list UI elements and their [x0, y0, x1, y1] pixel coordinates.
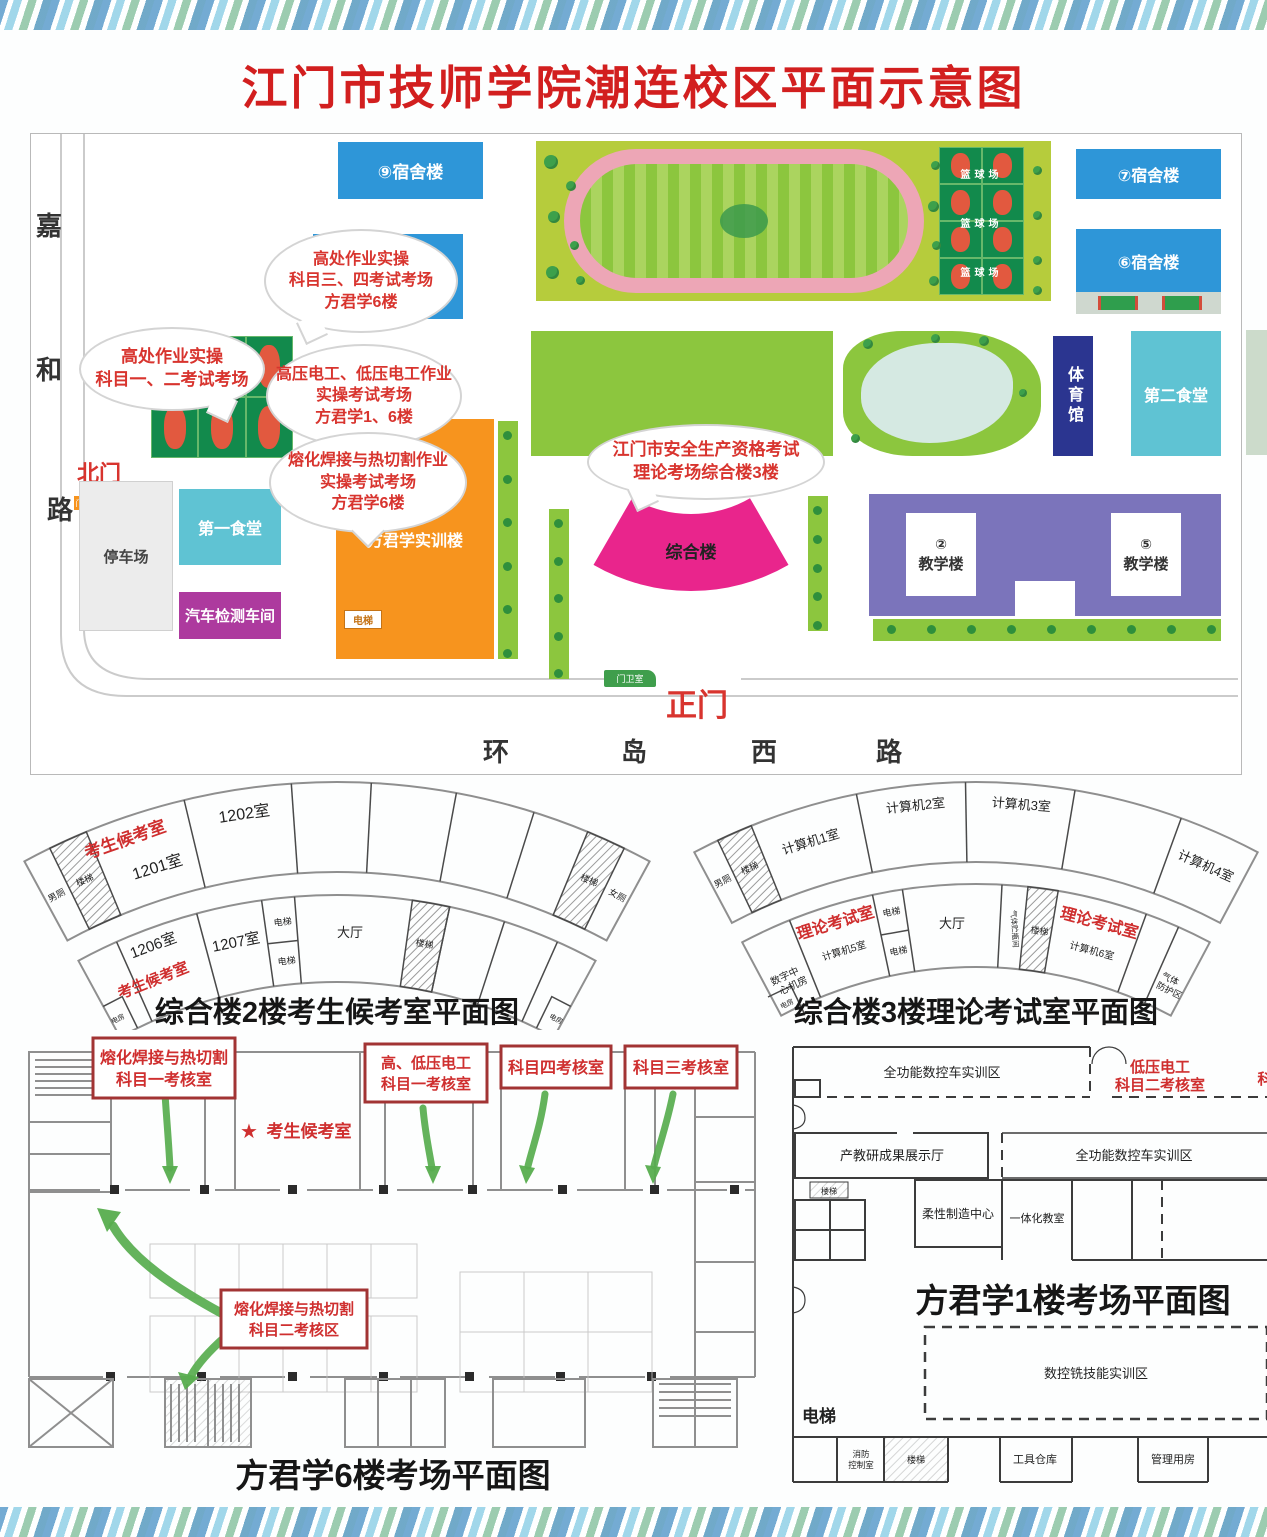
hall-label: 大厅	[337, 925, 363, 940]
tree-icon	[566, 181, 576, 191]
running-track	[564, 149, 924, 293]
main-gate-label: 正门	[666, 680, 728, 725]
shrub-icon	[1207, 625, 1216, 634]
label-electric-sub1-line1: 高、低压电工	[381, 1054, 471, 1072]
tree-icon	[1033, 286, 1042, 295]
computer-room-3: 计算机3室	[991, 795, 1051, 815]
stairs-bottom: 楼梯	[907, 1454, 925, 1465]
label-subject4: 科目四考核室	[508, 1058, 604, 1077]
fjx-floor1-plan: 全功能数控车实训区 低压电工 科目二考核室 科 产教研成果展示厅 全功能数控车实…	[782, 1032, 1267, 1505]
floor6-caption: 方君学6楼考场平面图	[235, 1457, 550, 1494]
tree-icon	[931, 334, 940, 343]
label-electric-sub1-line2: 科目一考核室	[381, 1075, 471, 1093]
fire-control-line1: 消防	[852, 1449, 870, 1459]
bubble-heights-12: 高处作业实操科目一、二考试考场	[79, 327, 265, 411]
road-jia: 嘉	[36, 206, 62, 243]
shrub-icon	[554, 669, 563, 678]
page-title: 江门市技师学院潮连校区平面示意图	[0, 52, 1267, 118]
tree-icon	[931, 161, 940, 170]
lv-electric-line1: 低压电工	[1129, 1058, 1190, 1076]
shrub-icon	[887, 625, 896, 634]
shrub-icon	[554, 557, 563, 566]
tree-strip-c	[808, 496, 828, 631]
pond-area	[843, 331, 1041, 456]
waiting-room-label-1: 考生候考室	[81, 816, 169, 864]
elevator-bold: 电梯	[802, 1406, 836, 1426]
ring-road-lu2: 路	[876, 732, 902, 769]
elevator-label-4: 电梯	[889, 944, 909, 958]
ring-road-dao: 岛	[621, 732, 647, 769]
road-he: 和	[36, 350, 62, 387]
complex-label: 综合楼	[666, 542, 717, 562]
dorm6-courts-strip	[1076, 292, 1221, 314]
elevator-label-2: 电梯	[277, 954, 296, 967]
teaching2-label: 教学楼	[918, 553, 963, 574]
flex-center: 柔性制造中心	[922, 1206, 994, 1221]
floor3-caption: 综合楼3楼理论考试室平面图	[794, 995, 1158, 1029]
shrub-icon	[554, 632, 563, 641]
gas-bottle-room: 气体贮瓶间	[1009, 910, 1022, 948]
teaching2-number: ②	[935, 536, 947, 553]
tree-icon	[1033, 256, 1042, 265]
bball-label-2: 篮球场	[939, 215, 1024, 230]
tree-icon	[546, 266, 559, 279]
bball-label-3: 篮球场	[939, 264, 1024, 279]
auto-workshop: 汽车检测车间	[179, 592, 281, 639]
tree-icon	[863, 339, 873, 349]
floor3-plan: 计算机1室 计算机2室 计算机3室 计算机4室 理论考试室 计算机5室 理论考试…	[688, 772, 1267, 1030]
tree-icon	[1019, 389, 1027, 397]
female-toilet: 女厕	[607, 886, 628, 904]
teaching5-number: ⑤	[1140, 536, 1152, 553]
male-toilet-3: 男厕	[712, 873, 733, 890]
sports-field: 篮球场 篮球场 篮球场	[536, 141, 1051, 301]
shrub-icon	[813, 621, 822, 630]
label-welding-sub1-line2: 科目一考核室	[116, 1070, 212, 1089]
fjx-elevator-tag: 电梯	[344, 610, 382, 629]
canteen2-building: 第二食堂	[1131, 331, 1221, 456]
shrub-icon	[503, 562, 512, 571]
computer-room-1: 计算机1室	[780, 826, 841, 858]
gym-building: 体育馆	[1053, 336, 1093, 456]
shrub-icon	[813, 506, 822, 515]
cnc-area-2: 全功能数控车实训区	[1075, 1148, 1192, 1163]
teaching5-courtyard: ⑤ 教学楼	[1111, 513, 1181, 596]
computer-room-6: 计算机6室	[1068, 938, 1115, 962]
milling-area: 数控铣技能实训区	[1044, 1366, 1148, 1381]
power-room-l: 电房	[110, 1012, 127, 1026]
tree-icon	[1033, 211, 1042, 220]
floor2-caption: 综合楼2楼考生候考室平面图	[155, 995, 519, 1029]
male-toilet: 男厕	[46, 887, 67, 904]
label-subject3: 科目三考核室	[633, 1058, 729, 1077]
star-icon: ★	[240, 1121, 258, 1143]
ring-road-huan: 环	[483, 732, 509, 769]
bubble-heights-34: 高处作业实操科目三、四考试考场方君学6楼	[264, 229, 458, 333]
tree-icon	[544, 155, 558, 169]
lv-electric-line2: 科目二考核室	[1115, 1076, 1205, 1094]
ring-road-xi: 西	[751, 732, 777, 769]
teaching2-courtyard: ② 教学楼	[906, 513, 976, 596]
teaching-buildings: ② 教学楼 ⑤ 教学楼	[869, 494, 1221, 616]
tree-icon	[576, 276, 585, 285]
computer-room-4: 计算机4室	[1176, 847, 1236, 885]
lv-electric-partial: 科	[1257, 1070, 1267, 1088]
shrub-icon	[813, 592, 822, 601]
shrub-icon	[1047, 625, 1056, 634]
elevator-label-1: 电梯	[273, 915, 292, 928]
shrub-icon	[554, 594, 563, 603]
theory-room-label-1: 理论考试室	[794, 902, 876, 944]
computer-room-5: 计算机5室	[820, 938, 867, 964]
shrub-icon	[554, 519, 563, 528]
road-lu: 路	[47, 490, 73, 527]
cnc-area-1: 全功能数控车实训区	[883, 1065, 1000, 1080]
tree-icon	[979, 336, 989, 346]
label-welding-sub1-line1: 熔化焊接与热切割	[100, 1048, 228, 1067]
tree-strip-b	[549, 509, 569, 679]
dorm7-building: ⑦宿舍楼	[1076, 149, 1221, 199]
shrub-icon	[927, 625, 936, 634]
teaching5-label: 教学楼	[1123, 553, 1168, 574]
tree-icon	[928, 201, 939, 212]
shrub-icon	[503, 475, 512, 484]
shrub-icon	[1127, 625, 1136, 634]
floor2-plan: 考生候考室 1201室 1202室 1206室 考生候考室 1207室 电梯 电…	[15, 772, 660, 1030]
tree-icon	[548, 211, 560, 223]
shrub-icon	[503, 605, 512, 614]
computer-room-2: 计算机2室	[885, 795, 945, 816]
decorative-border-top	[0, 0, 1267, 30]
room-1207: 1207室	[211, 929, 262, 955]
shrub-icon	[967, 625, 976, 634]
poster-page: { "title": "江门市技师学院潮连校区平面示意图", "map": { …	[0, 0, 1267, 1537]
shrub-icon	[1007, 625, 1016, 634]
floor1-caption: 方君学1楼考场平面图	[915, 1282, 1230, 1319]
guard-room-main: 门卫室	[604, 670, 656, 687]
basketball-courts-strip: 篮球场 篮球场 篮球场	[939, 147, 1024, 295]
edge-building-sliver	[1246, 330, 1267, 455]
tree-icon	[932, 241, 941, 250]
decorative-border-bottom	[0, 1507, 1267, 1537]
hall-label-3: 大厅	[939, 916, 965, 931]
bubble-theory-exam: 江门市安全生产资格考试理论考场综合楼3楼	[587, 424, 825, 500]
candidate-waiting-room: 考生候考室	[266, 1121, 352, 1141]
shrub-icon	[503, 518, 512, 527]
shrub-icon	[1087, 625, 1096, 634]
tree-icon	[851, 434, 860, 443]
theory-room-label-2: 理论考试室	[1058, 903, 1140, 942]
shrub-icon	[503, 431, 512, 440]
complex-building: 综合楼	[576, 496, 808, 596]
tree-icon	[929, 276, 939, 286]
shrub-icon	[503, 649, 512, 658]
integrated-classroom: 一体化教室	[1010, 1211, 1065, 1225]
tree-strip-teach	[873, 619, 1221, 641]
campus-map: 嘉 和 路 北门 正门 环 岛 西 路 门卫室 门卫室 ⑨宿舍楼 篮球场 篮球场…	[30, 133, 1242, 775]
management-room: 管理用房	[1151, 1452, 1195, 1466]
shrub-icon	[813, 564, 822, 573]
label-welding-sub2-line2: 科目二考核区	[249, 1321, 339, 1339]
tree-icon	[1033, 166, 1042, 175]
tree-icon	[570, 241, 579, 250]
shrub-icon	[1167, 625, 1176, 634]
bball-label-1: 篮球场	[939, 166, 1024, 181]
room-1202: 1202室	[217, 801, 271, 826]
stairs-small: 楼梯	[821, 1186, 837, 1196]
tool-warehouse: 工具仓库	[1013, 1452, 1057, 1466]
canteen1-building: 第一食堂	[179, 489, 281, 565]
elevator-label-3: 电梯	[882, 905, 902, 919]
fire-control-line2: 控制室	[848, 1460, 874, 1470]
label-welding-sub2-line1: 熔化焊接与热切割	[234, 1300, 354, 1318]
fjx-floor6-plan: 熔化焊接与热切割 科目一考核室 高、低压电工 科目一考核室 科目四考核室 科目三…	[15, 1032, 765, 1505]
exhibit-hall: 产教研成果展示厅	[840, 1148, 944, 1163]
bubble-welding: 熔化焊接与热切割作业实操考试考场方君学6楼	[269, 432, 467, 533]
shrub-icon	[813, 535, 822, 544]
tree-strip-a	[498, 421, 518, 659]
parking-lot: 停车场	[79, 481, 173, 631]
dorm6-building: ⑥宿舍楼	[1076, 229, 1221, 292]
room-1201: 1201室	[130, 851, 185, 884]
dorm9-building: ⑨宿舍楼	[338, 142, 483, 199]
